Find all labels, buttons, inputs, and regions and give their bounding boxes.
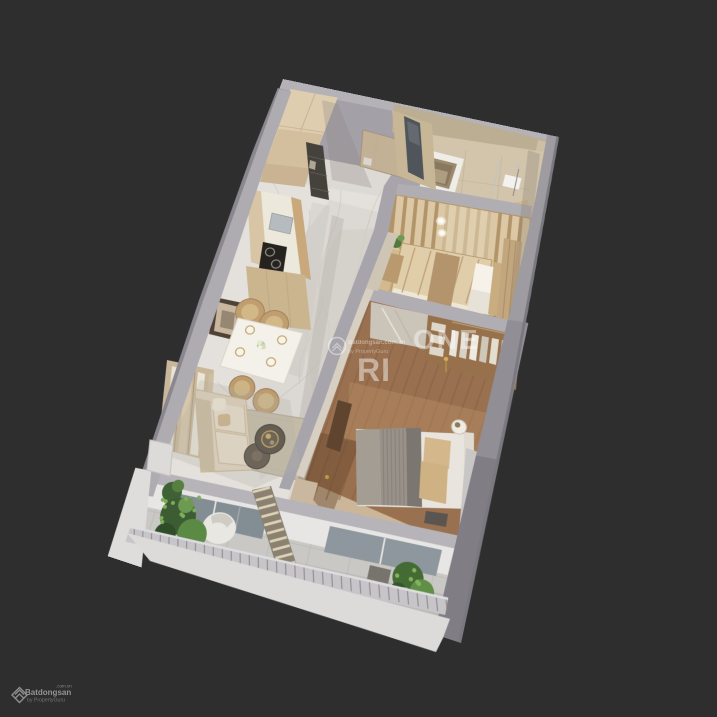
svg-text:Batdongsan.com.vn: Batdongsan.com.vn (348, 340, 406, 346)
svg-text:Batdongsan: Batdongsan (25, 688, 71, 697)
svg-text:by PropertyGuru: by PropertyGuru (27, 698, 65, 704)
svg-text:by PropertyGuru: by PropertyGuru (348, 349, 388, 355)
svg-text:.com.vn: .com.vn (56, 684, 72, 689)
